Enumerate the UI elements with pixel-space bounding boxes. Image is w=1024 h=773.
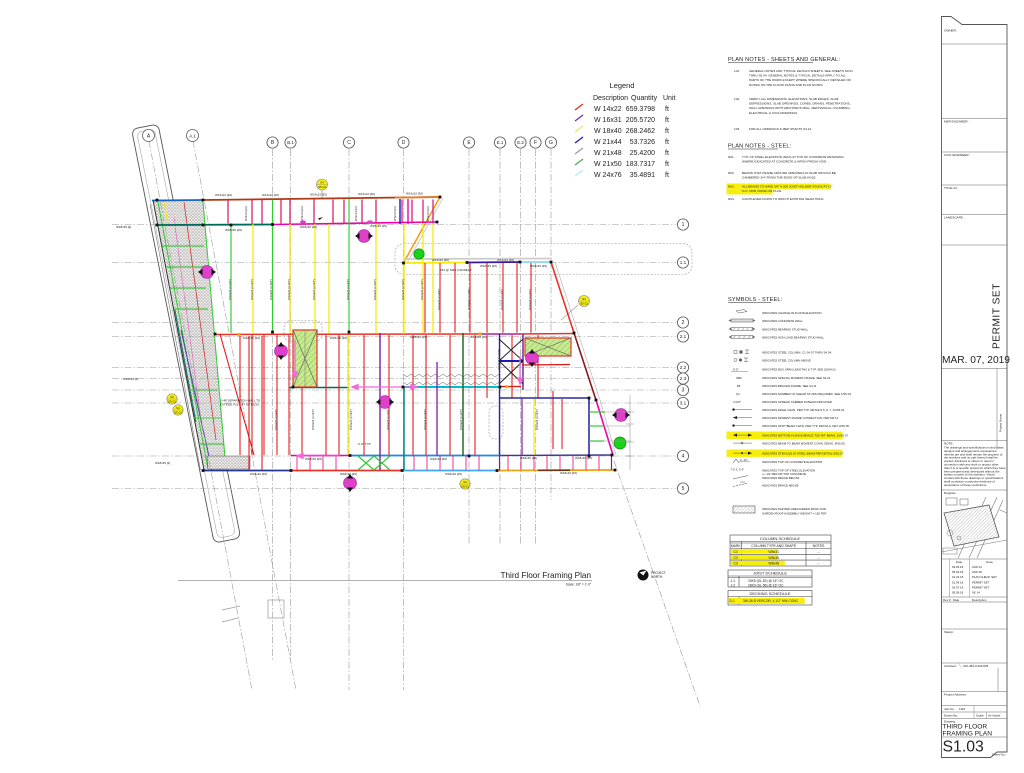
svg-text:TITLE 24:: TITLE 24: bbox=[944, 186, 958, 190]
svg-text:W16x26 (c=3/4"): W16x26 (c=3/4") bbox=[312, 279, 316, 300]
svg-text:SYMBOLS - STEEL:: SYMBOLS - STEEL: bbox=[728, 297, 783, 303]
svg-text:DECKING SCHEDULE: DECKING SCHEDULE bbox=[749, 591, 790, 596]
svg-text:EXTEND FULL HT OF BLDG: EXTEND FULL HT OF BLDG bbox=[220, 403, 260, 407]
svg-text:1.1: 1.1 bbox=[680, 260, 687, 265]
svg-text:W16x26 (c=3/4"): W16x26 (c=3/4") bbox=[287, 279, 291, 300]
svg-text:INDICATES BRACE BELOW: INDICATES BRACE BELOW bbox=[762, 476, 799, 480]
svg-text:--: -- bbox=[817, 562, 819, 566]
svg-text:D-1: D-1 bbox=[730, 599, 735, 603]
svg-text:C2: C2 bbox=[734, 556, 738, 560]
svg-text:PARTS OF THE WORK EXCEPT WHERE: PARTS OF THE WORK EXCEPT WHERE SPECIFICA… bbox=[749, 78, 852, 82]
svg-text:ASK 04: ASK 04 bbox=[972, 565, 982, 569]
svg-text:103.: 103. bbox=[734, 127, 740, 131]
svg-text:INDICATES STEEL COLUMN ABOVE: INDICATES STEEL COLUMN ABOVE bbox=[762, 359, 811, 363]
svg-text:W18x40 [26]: W18x40 [26] bbox=[370, 224, 387, 228]
svg-text:THIRD FLOOR: THIRD FLOOR bbox=[943, 724, 988, 731]
svg-text:5: 5 bbox=[682, 486, 685, 492]
svg-text:COLUMN TYPE AND SHAPE: COLUMN TYPE AND SHAPE bbox=[751, 544, 797, 548]
svg-text:S5.01: S5.01 bbox=[168, 400, 176, 404]
svg-text:W18x40 [26]: W18x40 [26] bbox=[430, 457, 447, 461]
svg-text:W18x40 [26]: W18x40 [26] bbox=[340, 472, 357, 476]
svg-text:NOTED ON THE FLOOR PLANS AND P: NOTED ON THE FLOOR PLANS AND PLAN NOTES. bbox=[749, 83, 824, 87]
svg-text:01.04.18: 01.04.18 bbox=[952, 580, 964, 584]
svg-text:W18x40 [26]: W18x40 [26] bbox=[445, 472, 462, 476]
svg-text:TYP. OF STEEL ELEVATION (MAX): TYP. OF STEEL ELEVATION (MAX) AT TOP OF … bbox=[742, 155, 844, 159]
svg-text:W8x35: W8x35 bbox=[768, 556, 779, 560]
svg-text:Architect:: Architect: bbox=[944, 664, 957, 668]
svg-text:53.7326: 53.7326 bbox=[630, 139, 655, 146]
svg-text:INDICATES BEAM TO BEAM MOMENT: INDICATES BEAM TO BEAM MOMENT CONN. DEMO… bbox=[762, 442, 845, 446]
svg-text:Scale: 1/8" = 1'-0": Scale: 1/8" = 1'-0" bbox=[566, 583, 591, 587]
svg-text:05.04.18: 05.04.18 bbox=[952, 570, 964, 574]
svg-text:#16 @ SMS CONNECT: #16 @ SMS CONNECT bbox=[440, 268, 472, 272]
svg-text:Stamp:: Stamp: bbox=[944, 630, 954, 634]
svg-text:Third Floor Framing Plan: Third Floor Framing Plan bbox=[500, 571, 591, 580]
svg-text:Date: Date bbox=[953, 598, 959, 602]
svg-text:W18x35 [4]: W18x35 [4] bbox=[155, 461, 170, 465]
svg-text:W18x40 [26]: W18x40 [26] bbox=[225, 228, 242, 232]
svg-text:W16x26 (c=3/4"): W16x26 (c=3/4") bbox=[401, 279, 405, 300]
svg-text:F: F bbox=[534, 140, 537, 146]
svg-text:VERIFY ALL DIMENSIONS, ELEVATI: VERIFY ALL DIMENSIONS, ELEVATIONS, SLAB … bbox=[749, 97, 838, 101]
svg-text:ft: ft bbox=[665, 106, 669, 113]
svg-text:BEAMS THAT FRAME AROUND OPENIN: BEAMS THAT FRAME AROUND OPENINGS IN SLAB… bbox=[742, 171, 836, 175]
svg-text:W12x14 (10): W12x14 (10) bbox=[393, 206, 397, 221]
svg-text:INDICATES PAINTED AREA/GREEN R: INDICATES PAINTED AREA/GREEN ROOF AND bbox=[762, 507, 826, 511]
svg-text:2'-6" TYP: 2'-6" TYP bbox=[358, 442, 371, 446]
svg-text:S5.01: S5.01 bbox=[461, 485, 469, 489]
svg-text:INDICATES SPREAD CAMBER IN BEA: INDICATES SPREAD CAMBER IN BEAM INDICATE… bbox=[762, 400, 832, 404]
svg-text:INDICATES TOP OF CONCRETE ELEV: INDICATES TOP OF CONCRETE ELEVATION bbox=[762, 460, 822, 464]
svg-text:S4: S4 bbox=[170, 395, 174, 399]
svg-text:O.C. NON VOICE ON PLAN.: O.C. NON VOICE ON PLAN. bbox=[742, 189, 782, 193]
svg-text:05.09.18: 05.09.18 bbox=[952, 591, 964, 595]
svg-text:DEPRESSIONS, SLAB OPENINGS, CU: DEPRESSIONS, SLAB OPENINGS, CURBS, DRAIN… bbox=[749, 102, 851, 106]
svg-text:INDICATES EDGE CHAN. PER TYP.: INDICATES EDGE CHAN. PER TYP. DETAILS 5,… bbox=[762, 408, 845, 412]
svg-text:S1.03: S1.03 bbox=[943, 739, 984, 756]
svg-text:INDICATES SPECIAL MOMENT FRAME: INDICATES SPECIAL MOMENT FRAME, SEE S4.0… bbox=[762, 376, 831, 380]
svg-text:W8x48: W8x48 bbox=[768, 562, 779, 566]
svg-text:ft: ft bbox=[665, 139, 669, 146]
svg-text:W16x26 (c=3/4"): W16x26 (c=3/4") bbox=[497, 349, 501, 370]
svg-text:INDICATES BOTTOM FLANGE BRACE: INDICATES BOTTOM FLANGE BRACE T3S "B4" B… bbox=[762, 434, 848, 438]
svg-text:--: -- bbox=[817, 556, 819, 560]
svg-text:J-2: J-2 bbox=[731, 583, 736, 587]
svg-text:INDICATES CONCRETE WALL: INDICATES CONCRETE WALL bbox=[762, 319, 803, 323]
svg-text:3W-36 B VERCOR, 4 1/2" NW CONC: 3W-36 B VERCOR, 4 1/2" NW CONC bbox=[743, 599, 799, 603]
svg-text:N03.: N03. bbox=[728, 185, 735, 189]
svg-text:[X]: [X] bbox=[736, 392, 740, 396]
svg-text:A.1: A.1 bbox=[189, 133, 196, 138]
svg-text:N02.: N02. bbox=[728, 171, 735, 175]
svg-text:W 18x40: W 18x40 bbox=[594, 128, 622, 135]
svg-text:W12x14 (10): W12x14 (10) bbox=[354, 206, 358, 221]
svg-text:C: C bbox=[347, 140, 351, 146]
svg-text:MEP ENGINEER:: MEP ENGINEER: bbox=[944, 120, 969, 124]
svg-text:W 21x44: W 21x44 bbox=[594, 139, 622, 146]
svg-text:MARK: MARK bbox=[731, 544, 742, 548]
svg-text:acceptance of these restrictio: acceptance of these restrictions. bbox=[944, 483, 987, 487]
svg-text:01.23.18: 01.23.18 bbox=[952, 575, 964, 579]
svg-text:W12x14 (10): W12x14 (10) bbox=[426, 206, 430, 221]
svg-text:W18x35 [4]: W18x35 [4] bbox=[116, 225, 131, 229]
svg-text:S4: S4 bbox=[320, 181, 324, 185]
svg-text:PLAN NOTES - STEEL:: PLAN NOTES - STEEL: bbox=[728, 144, 792, 150]
svg-text:As Noted: As Noted bbox=[988, 714, 1001, 718]
svg-text:2.2: 2.2 bbox=[680, 365, 687, 370]
svg-text:W18x40 [26]: W18x40 [26] bbox=[520, 456, 537, 460]
svg-text:659.3798: 659.3798 bbox=[626, 106, 655, 113]
svg-text:W16x26 (c=3/4"): W16x26 (c=3/4") bbox=[528, 289, 532, 310]
svg-text:W16x26 (c=3/4"): W16x26 (c=3/4") bbox=[228, 279, 232, 300]
svg-text:INDICATES NON LOAD BEARING STU: INDICATES NON LOAD BEARING STUD WALL bbox=[762, 336, 825, 340]
svg-text:W16x26 (c=3/4"): W16x26 (c=3/4") bbox=[423, 409, 427, 430]
svg-text:2.1: 2.1 bbox=[680, 334, 687, 339]
svg-text:FRAMING PLAN: FRAMING PLAN bbox=[943, 731, 993, 738]
svg-text:W 21x50: W 21x50 bbox=[594, 161, 622, 168]
svg-text:S4: S4 bbox=[463, 480, 467, 484]
svg-text:B.1: B.1 bbox=[287, 140, 294, 145]
svg-text:INDICATES BEARING STUD WALL: INDICATES BEARING STUD WALL bbox=[762, 328, 809, 332]
svg-text:PLAN NOTES - SHEETS AND GENERA: PLAN NOTES - SHEETS AND GENERAL: bbox=[728, 57, 840, 63]
svg-text:NOTES: NOTES bbox=[813, 544, 825, 548]
svg-text:OWNER:: OWNER: bbox=[944, 29, 957, 33]
svg-text:W14x22 [30]: W14x22 [30] bbox=[310, 193, 327, 197]
svg-text:W18x40 [26]: W18x40 [26] bbox=[305, 457, 322, 461]
svg-text:W18x40 [26]: W18x40 [26] bbox=[243, 336, 260, 340]
svg-text:Unit: Unit bbox=[663, 95, 676, 102]
svg-text:CAMBERED 3/4" FROM THE EDGE OF: CAMBERED 3/4" FROM THE EDGE OF SLAB HOLE… bbox=[742, 176, 817, 180]
svg-text:W12x14 (10): W12x14 (10) bbox=[300, 206, 304, 221]
svg-text:GENERAL NOTES AND TYPICAL DETA: GENERAL NOTES AND TYPICAL DETAILS SHEETS… bbox=[749, 69, 853, 73]
svg-text:ft: ft bbox=[665, 150, 669, 157]
svg-text:W14x22 [30]: W14x22 [30] bbox=[358, 192, 375, 196]
svg-text:35.4891: 35.4891 bbox=[630, 172, 655, 179]
svg-text:W16x26 (c=3/4"): W16x26 (c=3/4") bbox=[269, 279, 273, 300]
svg-text:GARDEN ROOF ASSEMBLY WEIGHT =: GARDEN ROOF ASSEMBLY WEIGHT = 150 PSF bbox=[762, 511, 827, 515]
svg-text:W18x40 [26]: W18x40 [26] bbox=[410, 335, 427, 339]
svg-text:Date: Date bbox=[956, 560, 962, 564]
svg-text:ASK 08: ASK 08 bbox=[972, 570, 982, 574]
svg-text:ELECTRICAL & CIVIL DRAWINGS.: ELECTRICAL & CIVIL DRAWINGS. bbox=[749, 111, 798, 115]
svg-text:E.1: E.1 bbox=[497, 140, 504, 145]
svg-text:C3: C3 bbox=[734, 562, 738, 566]
svg-text:D: D bbox=[402, 140, 406, 146]
svg-text:C1: C1 bbox=[734, 550, 738, 554]
svg-text:310-456-0.001/025: 310-456-0.001/025 bbox=[963, 664, 989, 668]
svg-text:W16x26 (c=3/4"): W16x26 (c=3/4") bbox=[373, 279, 377, 300]
svg-text:W18x40 [26]: W18x40 [26] bbox=[560, 471, 577, 475]
svg-text:W16x26 (c=3/4"): W16x26 (c=3/4") bbox=[437, 289, 441, 310]
svg-text:SMF: SMF bbox=[736, 376, 742, 380]
svg-text:CIVIL ENGINEER:: CIVIL ENGINEER: bbox=[944, 153, 970, 157]
svg-text:26K9 (SL-56) @ 16" OC: 26K9 (SL-56) @ 16" OC bbox=[748, 583, 784, 587]
svg-text:T.O.S. 0'-0": T.O.S. 0'-0" bbox=[731, 468, 744, 472]
svg-text:2.3: 2.3 bbox=[680, 376, 687, 381]
svg-text:FOR ALL OPENINGS & MEP SHAFTS: FOR ALL OPENINGS & MEP SHAFTS S4.21 bbox=[749, 127, 812, 131]
svg-text:S5.01: S5.01 bbox=[580, 302, 588, 306]
svg-text:ft: ft bbox=[665, 117, 669, 124]
svg-text:W18x40 [26]: W18x40 [26] bbox=[250, 472, 267, 476]
svg-text:INDICATES BRACED FRAME, SEE S4: INDICATES BRACED FRAME, SEE S4.11 bbox=[762, 384, 817, 388]
svg-text:G: G bbox=[549, 140, 553, 146]
svg-text:ft: ft bbox=[665, 128, 669, 135]
svg-text:W16x26 [4]: W16x26 [4] bbox=[123, 377, 138, 381]
svg-text:Issue: Issue bbox=[986, 560, 993, 564]
svg-text:Drawn By:: Drawn By: bbox=[944, 714, 958, 718]
svg-text:S4: S4 bbox=[582, 297, 586, 301]
svg-text:Project Address:: Project Address: bbox=[944, 693, 967, 697]
svg-text:W16x26 (c=3/4"): W16x26 (c=3/4") bbox=[467, 289, 471, 310]
svg-text:03.05.18: 03.05.18 bbox=[952, 565, 964, 569]
svg-text:PERMIT SET: PERMIT SET bbox=[992, 283, 1003, 349]
svg-text:W16x26 (c=3/4"): W16x26 (c=3/4") bbox=[420, 279, 424, 300]
svg-text:PERMIT SET: PERMIT SET bbox=[972, 580, 990, 584]
svg-text:W18x40 [26]: W18x40 [26] bbox=[330, 336, 347, 340]
svg-text:W16x26 (c=3/4"): W16x26 (c=3/4") bbox=[500, 289, 504, 310]
svg-text:INDICATES BOX SPAN LENGTHS & T: INDICATES BOX SPAN LENGTHS & TYP. SEE S2… bbox=[762, 368, 836, 372]
svg-text:3: 3 bbox=[682, 388, 685, 394]
svg-text:101.: 101. bbox=[734, 69, 740, 73]
svg-text:W16x26 (c=3/4"): W16x26 (c=3/4") bbox=[349, 409, 353, 430]
svg-text:COLUMN SCHEDULE: COLUMN SCHEDULE bbox=[760, 536, 801, 541]
svg-text:Sheet No.:: Sheet No.: bbox=[992, 753, 1006, 757]
svg-text:INDICATES CHANGE IN FLOOR ELEV: INDICATES CHANGE IN FLOOR ELEVATION bbox=[762, 311, 821, 315]
svg-text:CANTILEVER DOWN TO WATCH EXIST: CANTILEVER DOWN TO WATCH EXISTING SEAM H… bbox=[742, 197, 824, 201]
svg-text:PLAN CHECK SET: PLAN CHECK SET bbox=[972, 575, 997, 579]
svg-text:W16x26 (c=3/4"): W16x26 (c=3/4") bbox=[250, 279, 254, 300]
svg-text:W16x26 (c=3/4"): W16x26 (c=3/4") bbox=[535, 409, 539, 430]
svg-text:WHERE INDICATED AT CONCRETE &: WHERE INDICATED AT CONCRETE & WPSN FRESH… bbox=[742, 160, 827, 164]
svg-text:W 14x22: W 14x22 bbox=[594, 106, 622, 113]
svg-text:W12x14 (10): W12x14 (10) bbox=[244, 206, 248, 221]
svg-text:W18x40 [26]: W18x40 [26] bbox=[300, 225, 317, 229]
svg-text:ALL BEAMS TO HAVE 3/4" A 325 J: ALL BEAMS TO HAVE 3/4" A 325 JOIST HOLDE… bbox=[742, 185, 832, 189]
svg-text:N01.: N01. bbox=[728, 155, 735, 159]
svg-text:INDICATES MOMENT FRAME CONNECT: INDICATES MOMENT FRAME CONNECTION, PER D… bbox=[762, 416, 839, 420]
svg-text:S5.01: S5.01 bbox=[174, 411, 182, 415]
svg-text:205.5720: 205.5720 bbox=[626, 117, 655, 124]
svg-text:W14x22 [30]: W14x22 [30] bbox=[262, 193, 279, 197]
svg-text:A' -10": A' -10" bbox=[740, 458, 748, 462]
svg-text:JOIST SCHEDULE: JOIST SCHEDULE bbox=[753, 571, 787, 576]
svg-text:THRU S0.04. GENERAL NOTES & TY: THRU S0.04. GENERAL NOTES & TYPICAL DETA… bbox=[749, 74, 846, 78]
svg-text:WALL OPENINGS WITH ARCHITECTUR: WALL OPENINGS WITH ARCHITECTURAL, MECHAN… bbox=[749, 106, 851, 110]
svg-text:LANDSCAPE:: LANDSCAPE: bbox=[944, 216, 964, 220]
svg-text:W 24x76: W 24x76 bbox=[594, 172, 622, 179]
svg-text:W18x40 [26]: W18x40 [26] bbox=[470, 335, 487, 339]
svg-text:INDICATES STB HOLE IN STEEL BE: INDICATES STB HOLE IN STEEL BEAM PER DET… bbox=[762, 452, 843, 456]
svg-text:S5.01: S5.01 bbox=[318, 185, 326, 189]
svg-text:W16x26 (c=3/4"): W16x26 (c=3/4") bbox=[459, 409, 463, 430]
svg-text:3.1: 3.1 bbox=[680, 401, 687, 406]
svg-text:W16x26 (c=3/4"): W16x26 (c=3/4") bbox=[386, 409, 390, 430]
svg-text:W18x40 [26]: W18x40 [26] bbox=[575, 456, 592, 460]
svg-text:INDICATES STEEL COLUMN, C1 S4.: INDICATES STEEL COLUMN, C1 S4.07 THRU S4… bbox=[762, 351, 832, 355]
svg-text:BF: BF bbox=[737, 384, 741, 388]
svg-text:W16x26 (c=3/4"): W16x26 (c=3/4") bbox=[274, 409, 278, 430]
svg-text:NORTH: NORTH bbox=[651, 575, 663, 579]
svg-text:1: 1 bbox=[682, 222, 685, 228]
svg-text:W8x31: W8x31 bbox=[768, 550, 779, 554]
svg-text:Description: Description bbox=[593, 95, 628, 102]
svg-text:102.: 102. bbox=[734, 97, 740, 101]
svg-text:5'-0": 5'-0" bbox=[733, 368, 739, 372]
svg-text:--: -- bbox=[817, 550, 819, 554]
svg-text:W14x22 [30]: W14x22 [30] bbox=[406, 192, 423, 196]
svg-text:Job No.:: Job No.: bbox=[944, 707, 955, 711]
svg-text:Scale:: Scale: bbox=[976, 714, 985, 718]
svg-text:Rev #: Rev # bbox=[943, 598, 951, 602]
svg-text:INDICATES NUMBER OF SHEAR STUD: INDICATES NUMBER OF SHEAR STUDS REQUIRED… bbox=[762, 392, 851, 396]
svg-text:183.7317: 183.7317 bbox=[626, 161, 655, 168]
svg-text:W16x26 (c=3/4"): W16x26 (c=3/4") bbox=[346, 279, 350, 300]
svg-text:INDICATES SPOT BEAM CHAN. PER: INDICATES SPOT BEAM CHAN. PER TYP. DETAI… bbox=[762, 424, 849, 428]
svg-text:Project Name: Project Name bbox=[999, 413, 1003, 432]
svg-text:INDICATES BRACE ABOVE: INDICATES BRACE ABOVE bbox=[762, 484, 799, 488]
svg-text:ft: ft bbox=[665, 161, 669, 168]
svg-text:268.2462: 268.2462 bbox=[626, 128, 655, 135]
svg-text:W18x40 [26]: W18x40 [26] bbox=[530, 264, 547, 268]
svg-text:S4: S4 bbox=[176, 406, 180, 410]
svg-text:2: 2 bbox=[682, 320, 685, 326]
svg-text:W14x22 [30]: W14x22 [30] bbox=[497, 258, 514, 262]
svg-text:SK 14: SK 14 bbox=[972, 591, 980, 595]
svg-text:W 21x48: W 21x48 bbox=[594, 150, 622, 157]
svg-text:25.4200: 25.4200 bbox=[630, 150, 655, 157]
svg-text:PERMIT SET: PERMIT SET bbox=[972, 585, 990, 589]
svg-text:W18x40 [26]: W18x40 [26] bbox=[480, 264, 497, 268]
svg-text:1116: 1116 bbox=[959, 707, 966, 711]
svg-text:Quantity: Quantity bbox=[631, 95, 658, 102]
svg-text:E.2: E.2 bbox=[517, 140, 524, 145]
svg-text:MAR. 07, 2019: MAR. 07, 2019 bbox=[942, 355, 1010, 366]
svg-text:4: 4 bbox=[682, 454, 685, 460]
svg-text:03.07.19: 03.07.19 bbox=[952, 585, 964, 589]
svg-text:Register:: Register: bbox=[944, 491, 957, 495]
svg-text:ft: ft bbox=[665, 172, 669, 179]
svg-text:W 16x31: W 16x31 bbox=[594, 117, 622, 124]
svg-text:W14x22 [30]: W14x22 [30] bbox=[215, 193, 232, 197]
svg-text:Description: Description bbox=[972, 598, 987, 602]
svg-text:c=3/4": c=3/4" bbox=[733, 400, 741, 404]
svg-text:W16x26 (c=3/4"): W16x26 (c=3/4") bbox=[311, 409, 315, 430]
svg-text:N04.: N04. bbox=[728, 197, 735, 201]
svg-text:Legend: Legend bbox=[610, 81, 635, 90]
svg-text:W14x22 [30]: W14x22 [30] bbox=[432, 258, 449, 262]
